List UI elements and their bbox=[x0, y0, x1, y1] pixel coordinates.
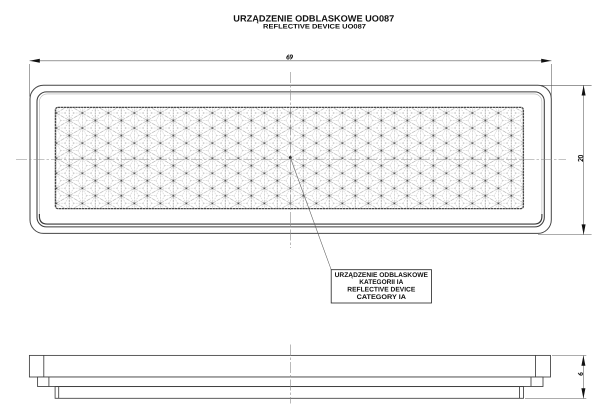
svg-text:KATEGORII IA: KATEGORII IA bbox=[359, 279, 403, 286]
svg-text:REFLECTIVE DEVICE: REFLECTIVE DEVICE bbox=[347, 287, 416, 294]
svg-text:URZĄDZENIE ODBLASKOWE UO087: URZĄDZENIE ODBLASKOWE UO087 bbox=[233, 13, 394, 23]
svg-text:URZĄDZENIE ODBLASKOWE: URZĄDZENIE ODBLASKOWE bbox=[335, 272, 429, 279]
svg-text:CATEGORY IA: CATEGORY IA bbox=[357, 294, 406, 301]
svg-text:REFLECTIVE DEVICE UO087: REFLECTIVE DEVICE UO087 bbox=[263, 24, 366, 31]
